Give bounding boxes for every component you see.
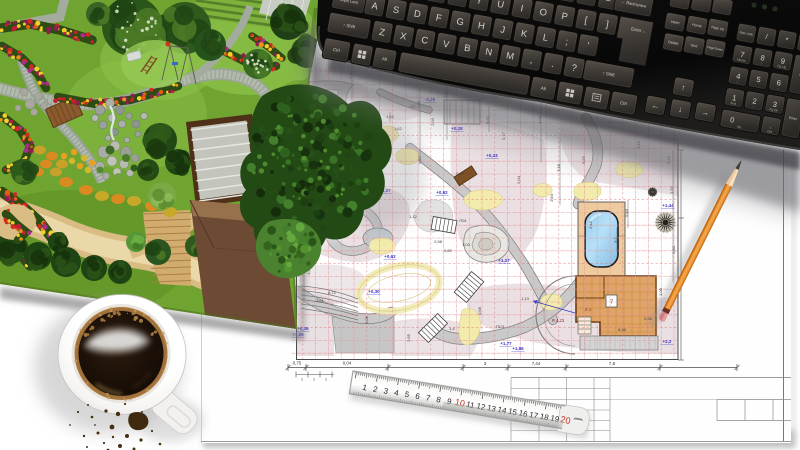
svg-text:+0,30: +0,30 [368,289,380,294]
svg-text:←: ← [651,101,661,111]
svg-text:2,65: 2,65 [406,333,411,342]
svg-text:+2,2: +2,2 [663,339,672,344]
svg-text:1,4: 1,4 [449,326,455,331]
svg-text:2,06: 2,06 [364,315,369,324]
svg-text:+1,77: +1,77 [500,341,512,346]
svg-text:+0,92: +0,92 [436,190,448,195]
svg-text:3,61: 3,61 [316,298,325,303]
svg-text:→: → [700,107,710,117]
svg-text:+1,86: +1,86 [512,346,524,351]
svg-text:7,44: 7,44 [532,361,541,366]
svg-text:0,04: 0,04 [343,361,352,366]
svg-text:8,36: 8,36 [618,327,627,332]
svg-text:7,8: 7,8 [609,361,616,366]
svg-text:1: 1 [325,378,327,382]
svg-text:1: 1 [301,378,303,382]
svg-text:+0,33: +0,33 [486,153,498,158]
svg-text:1: 1 [313,378,315,382]
svg-text:ПС3: ПС3 [496,324,505,329]
svg-text:0,68: 0,68 [477,306,482,315]
svg-text:R 4,23: R 4,23 [552,318,565,323]
svg-text:2,84: 2,84 [549,193,554,202]
svg-text:+1,44: +1,44 [662,203,674,208]
svg-text:П01: П01 [459,218,467,223]
svg-text:1,13: 1,13 [521,296,530,301]
svg-text:1,03: 1,03 [462,242,471,247]
svg-text:+0,62: +0,62 [384,254,396,259]
svg-text:9,7: 9,7 [613,236,618,242]
svg-text:0,75: 0,75 [293,361,302,366]
svg-text:2,04: 2,04 [516,175,521,184]
svg-text:0,22: 0,22 [456,171,465,176]
svg-text:3: 3 [484,361,487,366]
svg-text:0,84: 0,84 [624,208,629,217]
svg-text:1,00: 1,00 [658,287,663,296]
svg-text:7,18: 7,18 [556,163,561,172]
svg-text:1,12: 1,12 [409,214,418,219]
svg-text:0,82: 0,82 [444,248,453,253]
svg-text:0,80: 0,80 [671,245,676,254]
svg-text:R 3: R 3 [585,307,592,312]
svg-text:+1,27: +1,27 [498,258,510,263]
svg-text:2,43: 2,43 [588,220,593,229]
svg-text:7: 7 [610,300,613,306]
svg-text:2,98: 2,98 [434,239,443,244]
svg-text:8,72: 8,72 [328,290,337,295]
